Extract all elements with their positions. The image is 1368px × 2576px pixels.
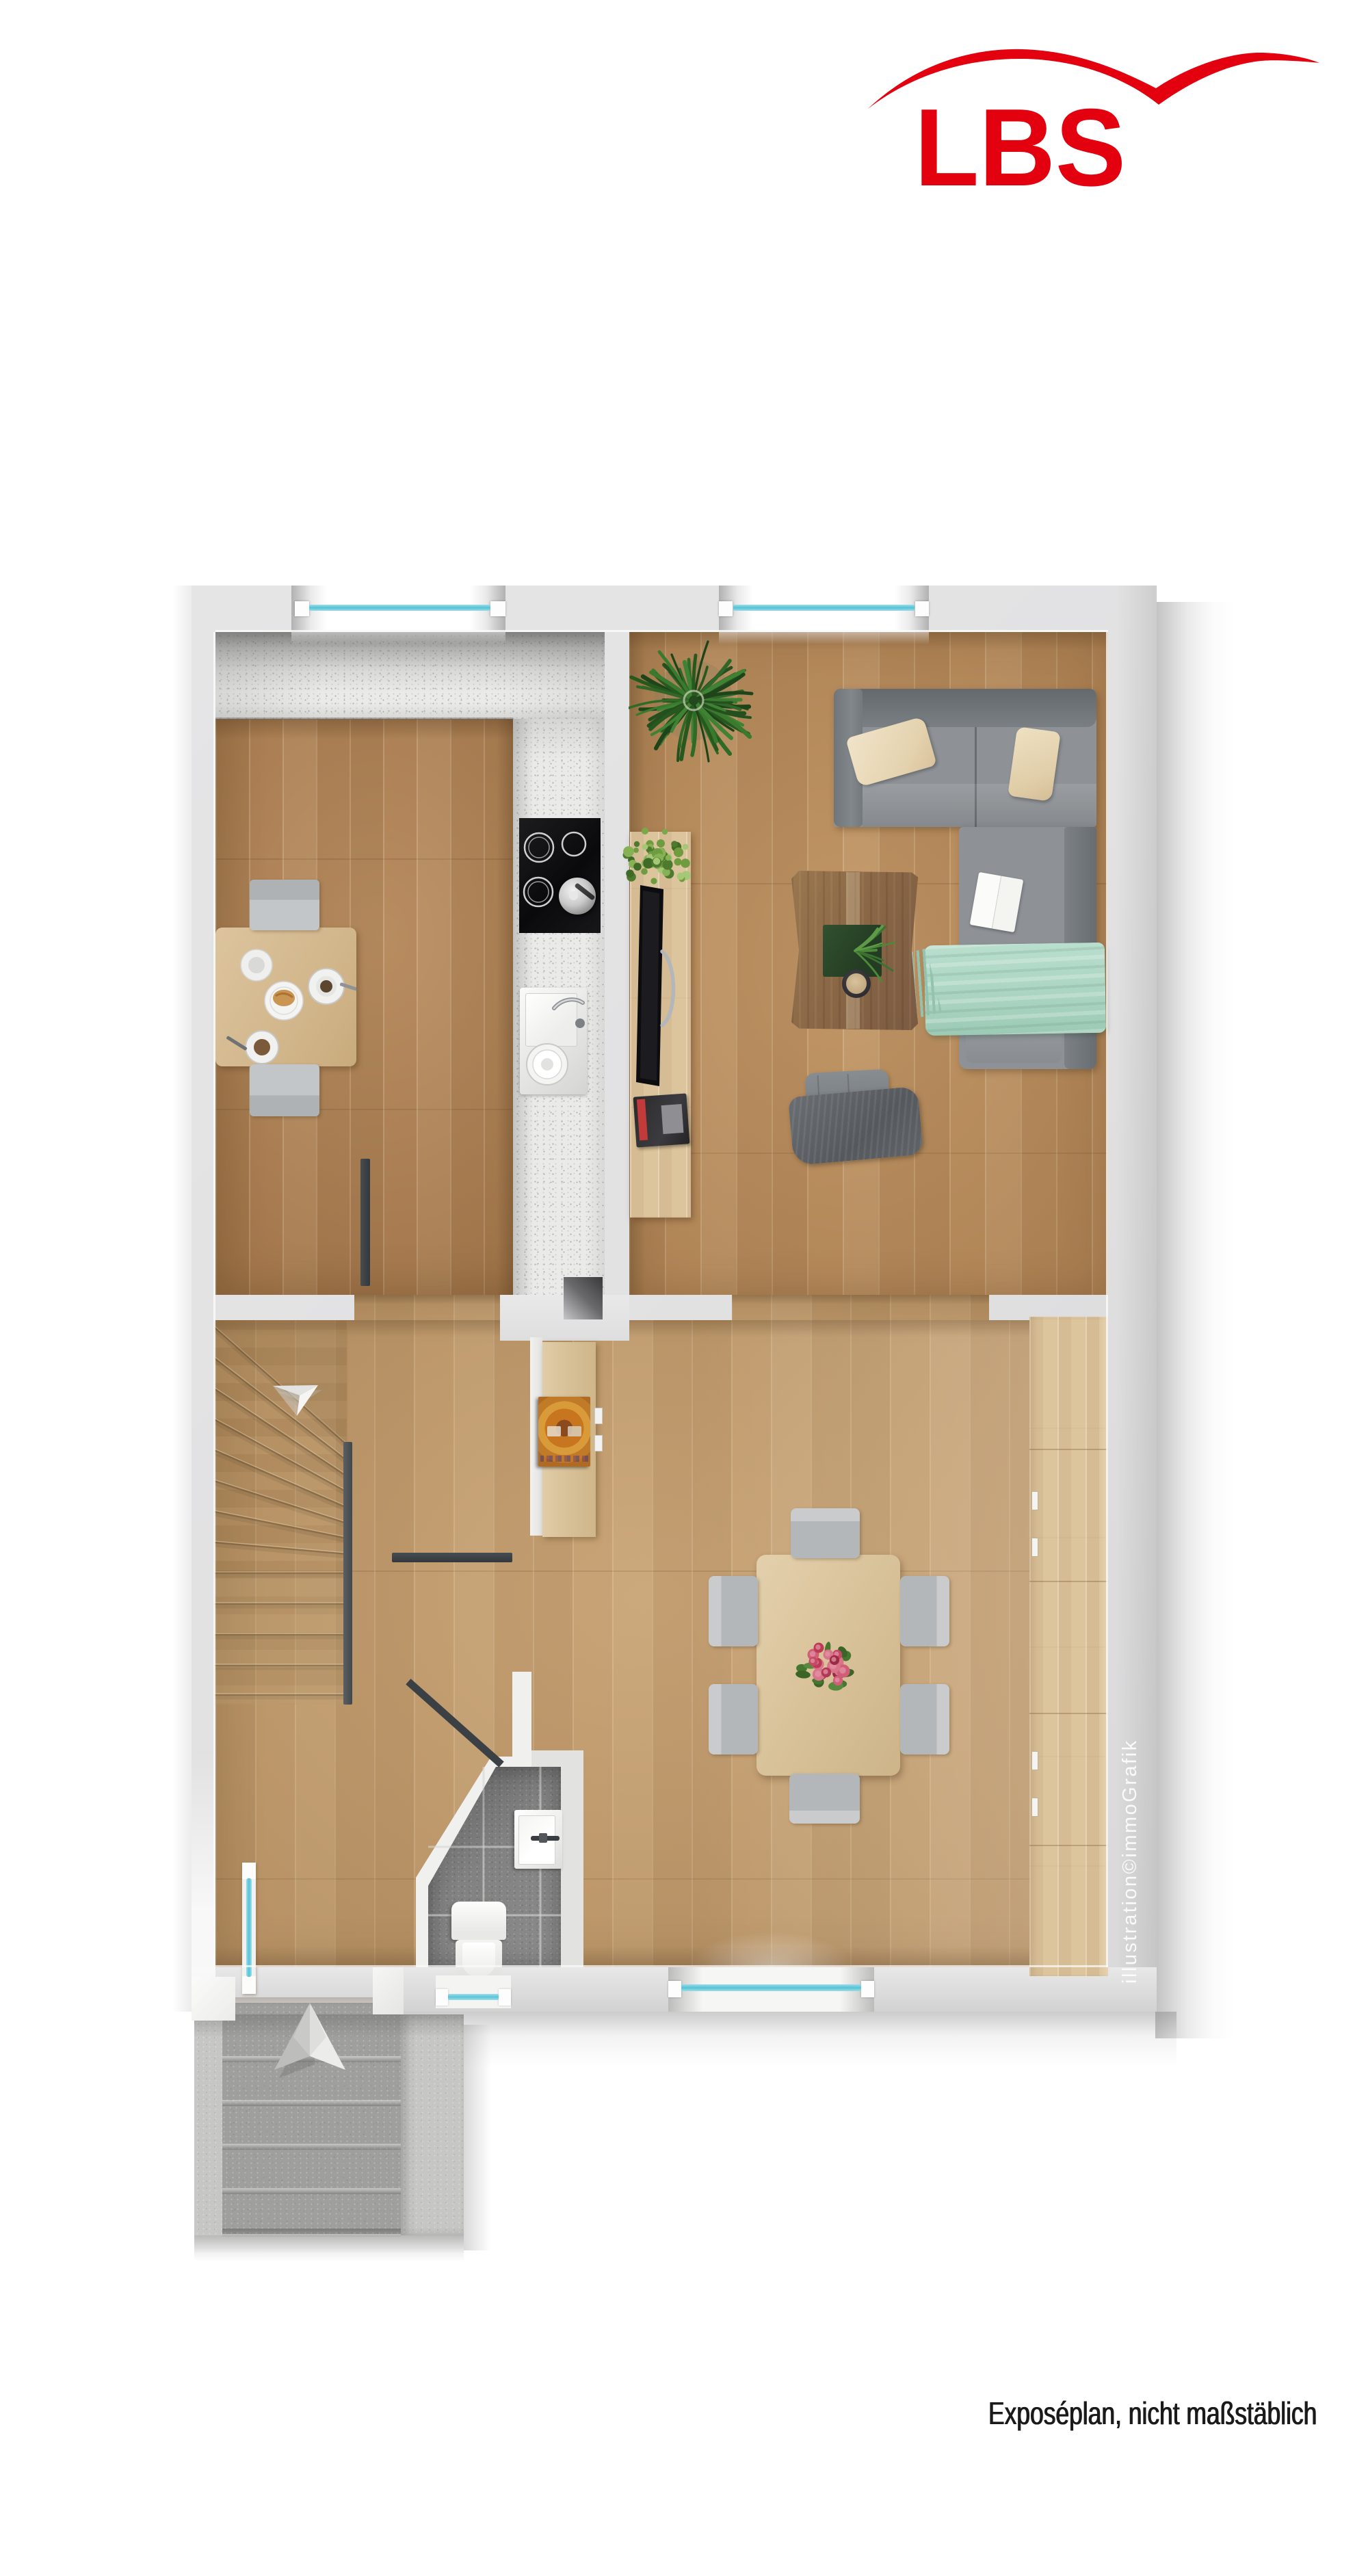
svg-text:LBS: LBS bbox=[915, 86, 1126, 205]
